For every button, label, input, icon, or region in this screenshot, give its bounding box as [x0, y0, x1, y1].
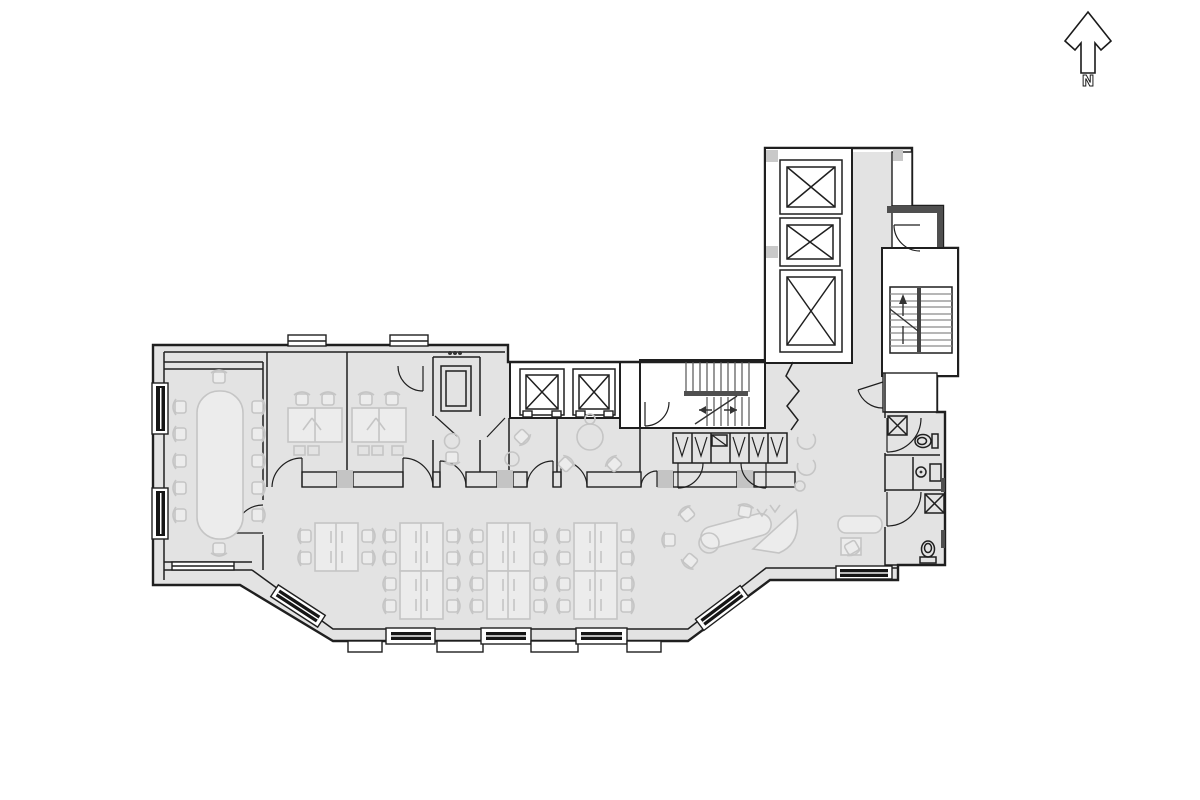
- north-label: N: [1082, 72, 1095, 90]
- bay-pier: [627, 641, 661, 652]
- stair-stringer: [917, 288, 921, 352]
- column: [657, 470, 673, 488]
- window: [481, 628, 531, 644]
- conference-table: [197, 391, 243, 539]
- chair: [320, 392, 336, 405]
- chair: [173, 426, 186, 442]
- chair: [252, 507, 265, 523]
- floor-plan: N: [0, 0, 1200, 800]
- column: [737, 470, 753, 488]
- window: [390, 335, 428, 346]
- chair: [252, 399, 265, 415]
- chair: [211, 543, 227, 556]
- chair: [294, 392, 310, 405]
- chair: [384, 392, 400, 405]
- window: [836, 566, 892, 579]
- bay-pier: [531, 641, 578, 652]
- heavy-wall: [887, 206, 943, 213]
- window: [152, 488, 168, 539]
- chair: [444, 452, 460, 465]
- window: [172, 562, 234, 570]
- stair-landing-edge: [684, 391, 748, 396]
- riser: [941, 478, 945, 492]
- column: [497, 470, 513, 488]
- bay-pier: [348, 641, 382, 652]
- chair: [252, 453, 265, 469]
- window: [288, 335, 326, 346]
- riser: [941, 530, 945, 548]
- chair: [173, 399, 186, 415]
- chair: [358, 392, 374, 405]
- chair: [252, 426, 265, 442]
- chair: [173, 480, 186, 496]
- main-stairwell: [882, 248, 958, 376]
- chair: [173, 507, 186, 523]
- column: [337, 470, 353, 488]
- window: [576, 628, 627, 644]
- floor-plan-canvas: N: [0, 0, 1200, 800]
- upper-elevator-bank: [765, 148, 852, 363]
- chair: [173, 453, 186, 469]
- bay-pier: [437, 641, 483, 652]
- chair: [211, 370, 227, 383]
- chair: [662, 532, 675, 548]
- heavy-wall: [937, 213, 943, 248]
- north-arrow-icon: N: [1065, 12, 1111, 90]
- window: [386, 628, 435, 644]
- chair: [252, 480, 265, 496]
- window: [152, 383, 168, 434]
